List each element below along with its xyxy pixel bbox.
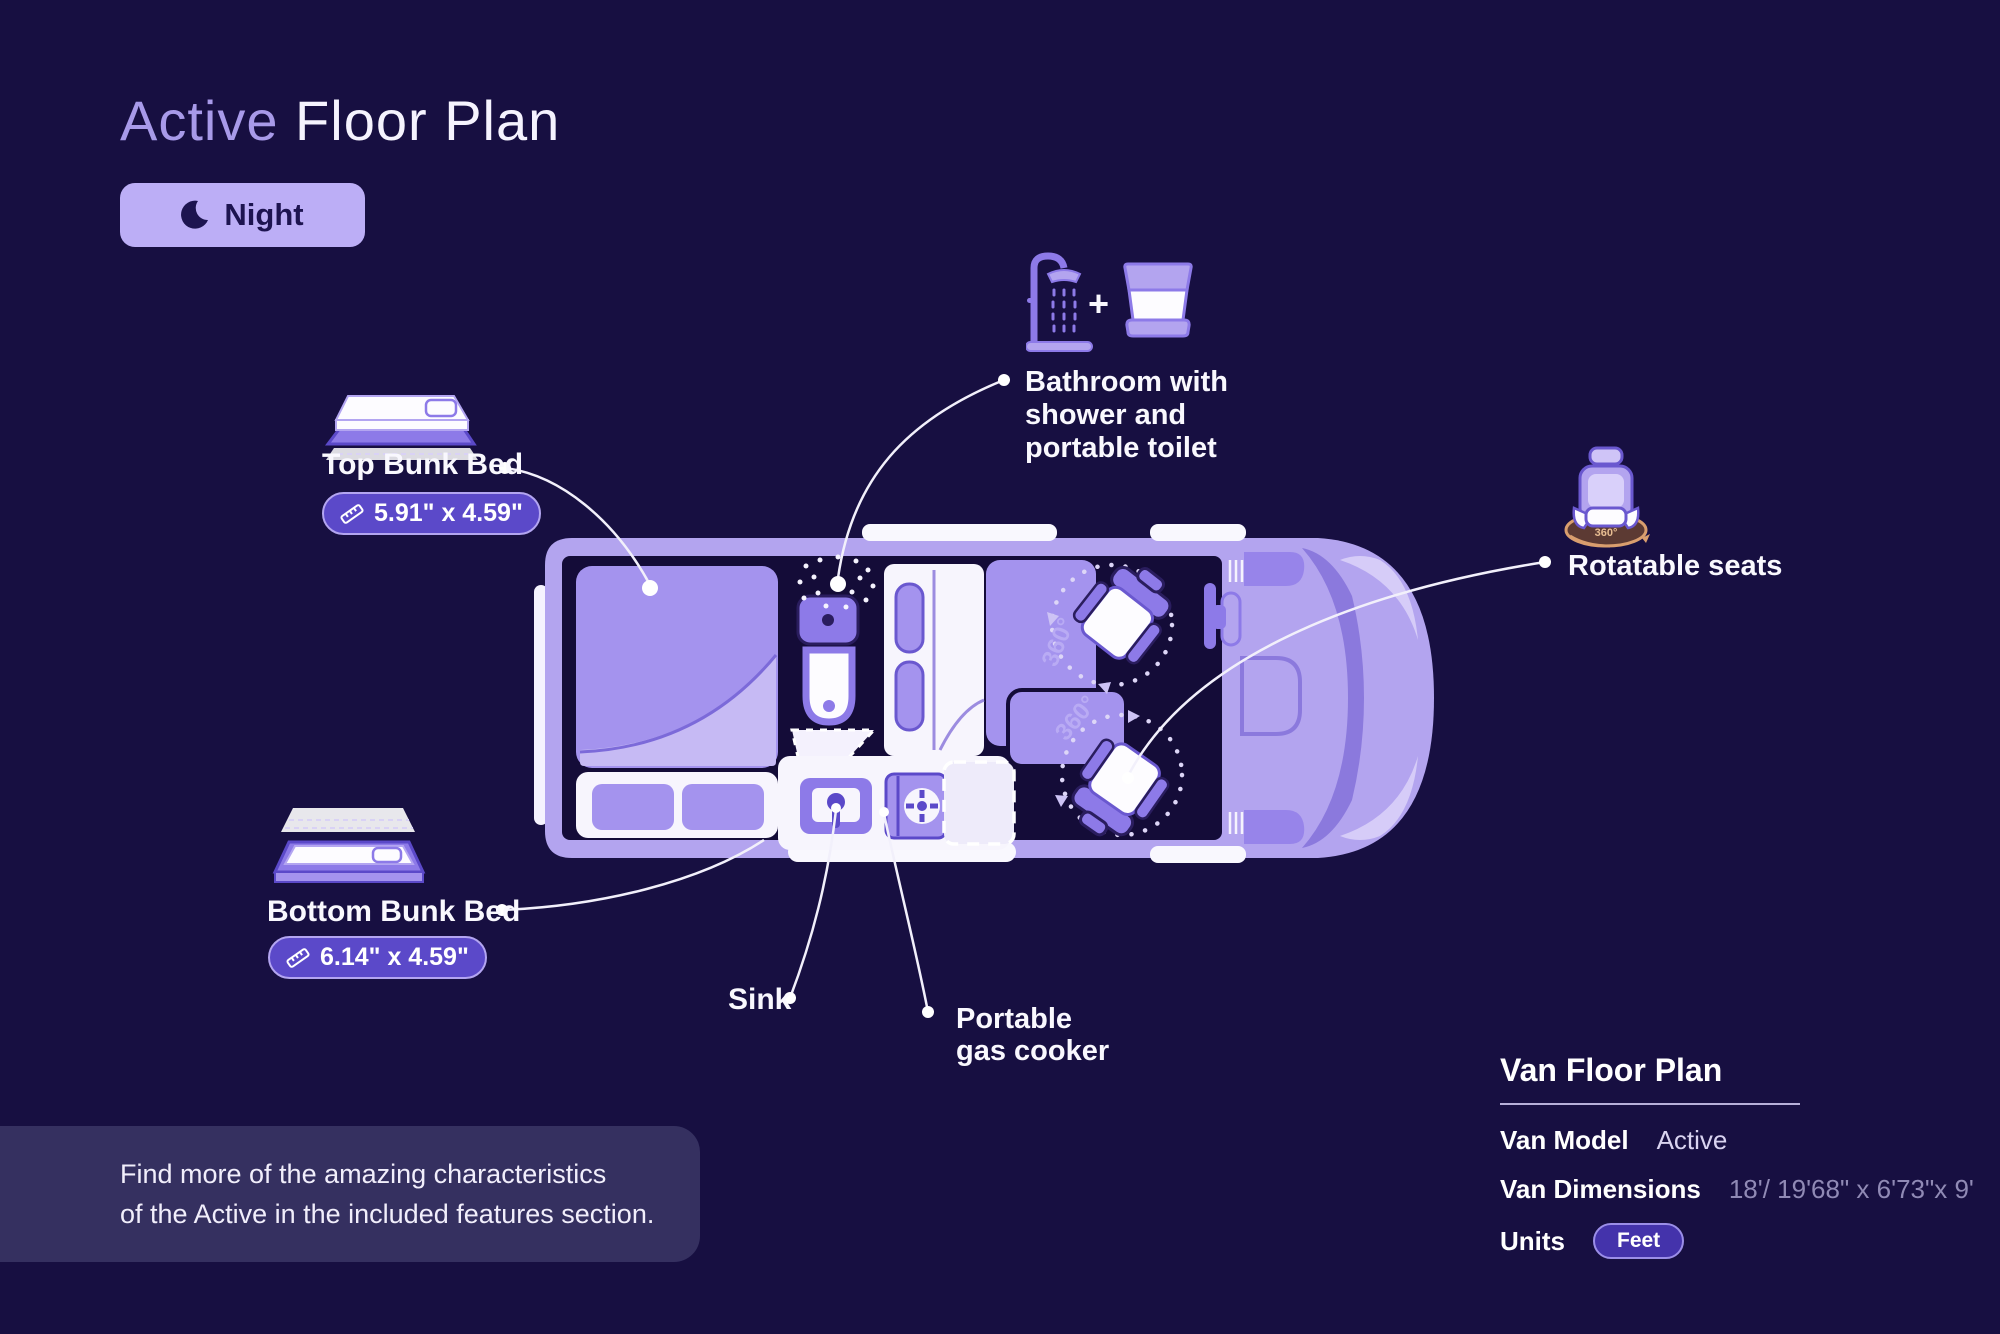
features-note-line1: Find more of the amazing characteristics: [120, 1154, 700, 1194]
top-bunk-size-pill: 5.91" x 4.59": [322, 492, 541, 535]
rotatable-seats-label: Rotatable seats: [1568, 550, 1782, 583]
cab-trim-bottom: [1244, 810, 1304, 844]
van-bottom-window-right: [1150, 846, 1246, 863]
bench-seat: [576, 772, 778, 838]
bottom-bunk-size: 6.14" x 4.59": [320, 943, 469, 972]
night-mode-label: Night: [224, 197, 303, 233]
shower-icon: [1026, 252, 1096, 354]
units-label: Units: [1500, 1226, 1565, 1257]
panel-divider: [1500, 1103, 1800, 1105]
top-bunk-bed-icon: [318, 362, 483, 462]
wardrobe-cabinet: [884, 564, 984, 756]
plus-sign: +: [1088, 283, 1109, 325]
bottom-bunk-bed-icon: [263, 798, 433, 903]
cab-trim-top: [1244, 552, 1304, 586]
van-dimensions-value: 18'/ 19'68" x 6'73"x 9': [1729, 1174, 1974, 1205]
moon-icon: [181, 200, 209, 230]
features-note-line2: of the Active in the included features s…: [120, 1194, 700, 1234]
van-dimensions-label: Van Dimensions: [1500, 1174, 1701, 1205]
van-model-label: Van Model: [1500, 1125, 1629, 1156]
panel-heading: Van Floor Plan: [1500, 1052, 1920, 1089]
van-model-row: Van Model Active: [1500, 1125, 1920, 1156]
gas-cooker-plan: [886, 774, 946, 838]
fixed-bed: [576, 566, 778, 768]
toilet-plan: [798, 596, 858, 722]
top-bunk-size: 5.91" x 4.59": [374, 499, 523, 528]
night-mode-button[interactable]: Night: [120, 183, 365, 247]
page-title-rest: Floor Plan: [279, 89, 561, 152]
features-note: Find more of the amazing characteristics…: [0, 1126, 700, 1262]
infographic-canvas: 360° 360°: [0, 0, 2000, 1334]
ruler-icon: [340, 502, 364, 526]
kitchen-counter: [778, 756, 1014, 850]
units-row: Units Feet: [1500, 1223, 1920, 1259]
van-info-panel: Van Floor Plan Van Model Active Van Dime…: [1500, 1052, 1920, 1259]
ruler-icon: [286, 946, 310, 970]
sink-label: Sink: [728, 983, 791, 1017]
portable-toilet-icon: [1122, 262, 1194, 338]
units-value-pill[interactable]: Feet: [1593, 1223, 1684, 1259]
rotatable-seat-icon: 360°: [1560, 446, 1652, 550]
bottom-bunk-size-pill: 6.14" x 4.59": [268, 936, 487, 979]
van-dimensions-row: Van Dimensions 18'/ 19'68" x 6'73"x 9': [1500, 1174, 1920, 1205]
seat-icon-rotation-badge: 360°: [1595, 527, 1618, 539]
counter-extension-dashed: [944, 762, 1014, 844]
van-top-window-left: [862, 524, 1057, 541]
gas-cooker-label: Portable gas cooker: [956, 1003, 1109, 1067]
bathroom-label: Bathroom with shower and portable toilet: [1025, 366, 1228, 465]
bottom-bunk-label: Bottom Bunk Bed: [267, 895, 520, 929]
van-model-value: Active: [1657, 1125, 1728, 1156]
top-bunk-label: Top Bunk Bed: [322, 448, 523, 482]
page-title-highlight: Active: [120, 89, 279, 152]
van-top-window-right: [1150, 524, 1246, 541]
page-title: Active Floor Plan: [120, 88, 560, 153]
